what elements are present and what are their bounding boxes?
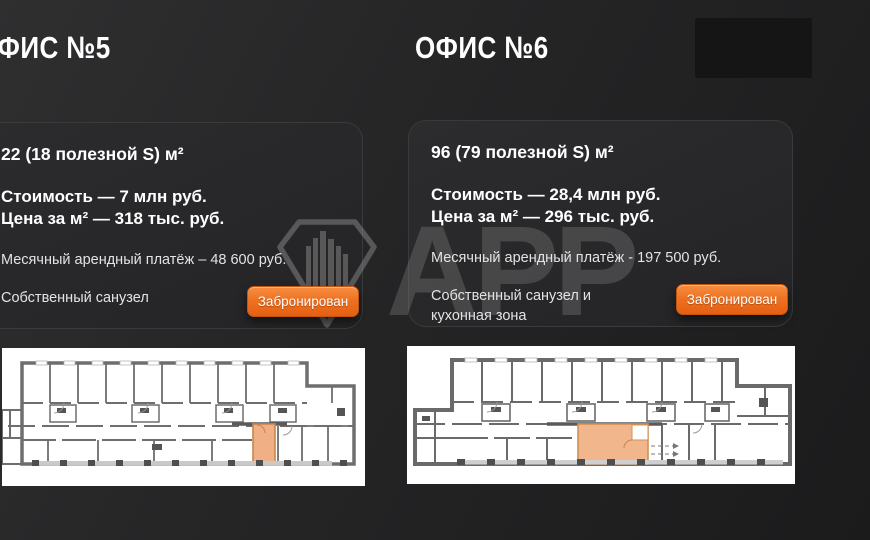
office5-area: 22 (18 полезной S) м²: [1, 143, 344, 165]
office5-price-block: Стоимость — 7 млн руб. Цена за м² — 318 …: [1, 186, 344, 230]
office5-card: 22 (18 полезной S) м² Стоимость — 7 млн …: [0, 122, 363, 329]
office6-floor-plan-drawing: [407, 346, 795, 484]
office5-price-per-m2: Цена за м² — 318 тыс. руб.: [1, 208, 344, 230]
office5-rent: Месячный арендный платёж – 48 600 руб.: [1, 250, 344, 270]
office6-reserved-button[interactable]: Забронирован: [676, 284, 788, 315]
office5-features: Собственный санузел: [1, 288, 201, 308]
office6-features: Собственный санузел и кухонная зона: [431, 286, 631, 326]
office6-card: 96 (79 полезной S) м² Стоимость — 28,4 м…: [408, 120, 793, 327]
office5-floor-plan-drawing: [2, 348, 365, 486]
office5-title: ОФИС №5: [0, 30, 111, 66]
office6-cost: Стоимость — 28,4 млн руб.: [431, 184, 774, 206]
top-right-placeholder-box: [695, 18, 812, 78]
office6-price-per-m2: Цена за м² — 296 тыс. руб.: [431, 206, 774, 228]
office5-reserved-button[interactable]: Забронирован: [247, 286, 359, 317]
office5-cost: Стоимость — 7 млн руб.: [1, 186, 344, 208]
office5-details: 22 (18 полезной S) м² Стоимость — 7 млн …: [0, 123, 362, 308]
office5-floor-plan: [2, 348, 365, 486]
office6-floor-plan: [407, 346, 795, 484]
page: ОФИС №5 ОФИС №6 22 (18 полезной S) м² Ст…: [0, 0, 870, 540]
office6-rent: Месячный арендный платёж - 197 500 руб.: [431, 248, 774, 268]
office6-title: ОФИС №6: [415, 30, 549, 66]
office6-area: 96 (79 полезной S) м²: [431, 141, 774, 163]
office6-price-block: Стоимость — 28,4 млн руб. Цена за м² — 2…: [431, 184, 774, 228]
